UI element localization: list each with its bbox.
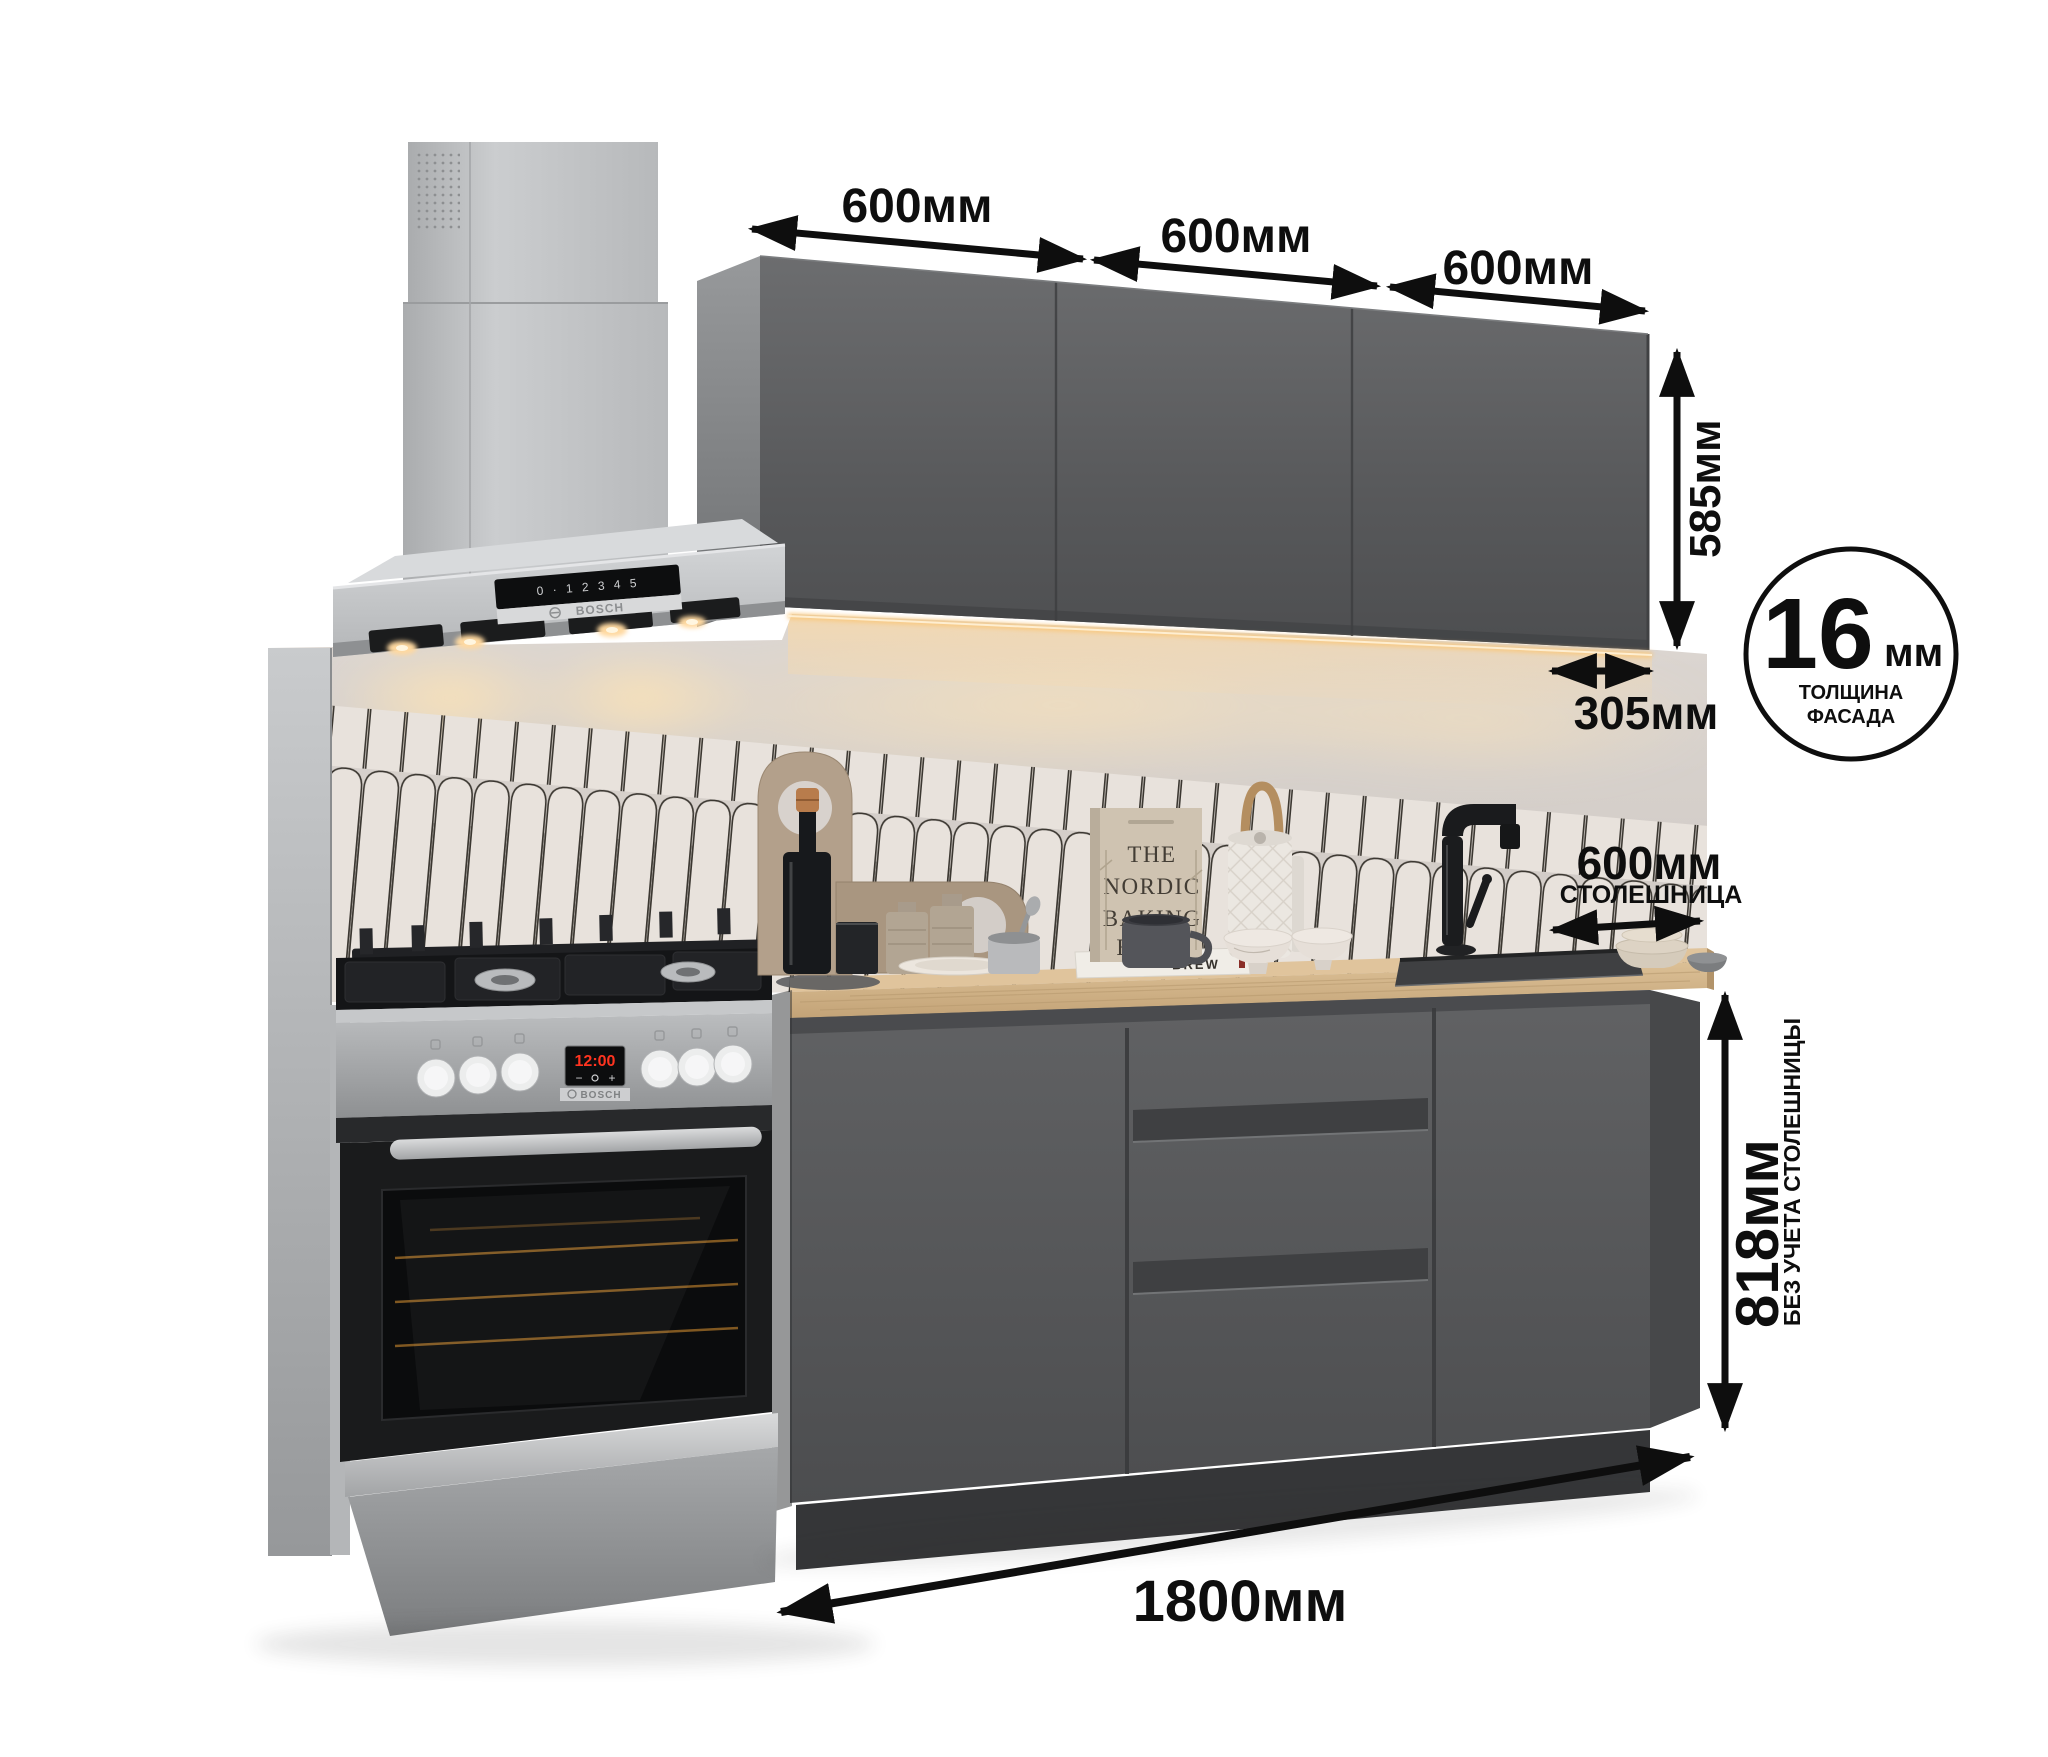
facade-value: 16 [1762, 578, 1873, 690]
facade-caption-1: ТОЛЩИНА [1799, 682, 1903, 704]
base-cabinets [790, 990, 1700, 1570]
dim-height-585: 585мм [1681, 419, 1730, 558]
dim-width-2: 600мм [1160, 210, 1311, 263]
base-front [790, 990, 1650, 1503]
kitchen-product-render: 0 · 1 2 3 4 5 BOSCH [0, 0, 2048, 1757]
facade-unit: мм [1884, 631, 1943, 675]
faucet-spout [1500, 824, 1520, 849]
stove-plus: + [608, 1071, 615, 1085]
book-title-2: NORDIC [1103, 874, 1200, 899]
stove: 12:00 − + BOSCH [330, 907, 778, 1636]
base-right-side [1650, 990, 1700, 1428]
facade-caption-2: ФАСАДА [1807, 706, 1895, 728]
dim-total-width: 1800мм [1133, 1569, 1348, 1634]
scene: 0 · 1 2 3 4 5 BOSCH [0, 0, 2048, 1757]
stove-brand-label: BOSCH [580, 1090, 621, 1101]
stove-minus: − [575, 1071, 582, 1085]
dim-width-1: 600мм [841, 180, 992, 233]
stove-clock: 12:00 [575, 1053, 616, 1070]
serving-mat [776, 974, 880, 990]
book-title-1: THE [1127, 842, 1176, 867]
dim-width-3: 600мм [1442, 242, 1593, 295]
left-side-panel [268, 648, 332, 1556]
stove-display: 12:00 − + BOSCH [560, 1046, 630, 1101]
hood-vent-grille [413, 150, 460, 230]
dim-height-818-note: БЕЗ УЧЕТА СТОЛЕШНИЦЫ [1779, 1018, 1805, 1326]
book-author-line [1128, 820, 1174, 824]
book-spine [1090, 808, 1100, 962]
bosch-logo-bar-icon [551, 612, 559, 613]
dim-counter-label: СТОЛЕШНИЦА [1560, 881, 1743, 909]
facade-badge: 16 мм ТОЛЩИНА ФАСАДА [1746, 549, 1956, 759]
dim-depth-305: 305мм [1574, 687, 1719, 739]
glass-tumbler [836, 922, 878, 974]
